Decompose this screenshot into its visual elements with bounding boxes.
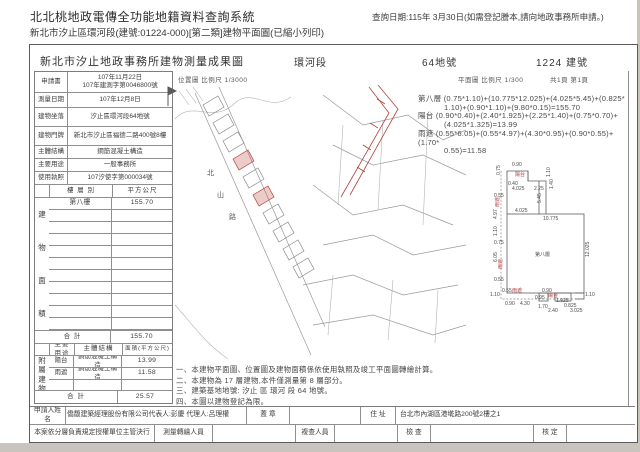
document-page: 北北桃地政電傳全功能地籍資料查詢系統 查詢日期:115年 3月30日(如需登記謄… (0, 0, 637, 443)
annex-total-area: 25.57 (117, 391, 172, 403)
row-label: 測量日期 (35, 93, 67, 107)
plan-dim-label: 2.40 (548, 308, 558, 314)
table-row: 測量日期 107年12月8日 (35, 92, 172, 107)
table-row: 主體結構 鋼筋混凝土構造 (35, 145, 172, 158)
annex-total-row: 合 計 25.57 (35, 390, 172, 403)
row-label: 申請書 (35, 72, 67, 92)
annex-use: 陽台 (49, 356, 73, 367)
query-date: 查詢日期:115年 3月30日(如需登記謄本,請向地政事務所申請。) (372, 11, 604, 23)
floor-name: 第八樓 (49, 198, 111, 209)
formula-label: 第八層 (418, 94, 441, 103)
row-value: 一般事務所 (67, 159, 172, 171)
surveyor-label: 測量轉繪人員 (155, 425, 213, 442)
seal-cell (290, 407, 361, 424)
annex-header-row: 主要用途 主體結構 面積(平方公尺) (35, 343, 172, 355)
annex-row: 雨遮 鋼筋混凝土構造 11.58 (49, 367, 172, 379)
formula-entry: 雨遮 (0.55*6.05)+(0.55*4.97)+(4.30*0.95)+(… (418, 130, 633, 156)
document-subtitle: 新北市汐止區環河段(建號:01224-000)[第二類]建物平面圖(已縮小列印) (30, 25, 324, 39)
row-value: 107年11月22日 107年建測字第0046800號 (67, 72, 172, 92)
annex-side-label: 附 屬 建 物 (35, 356, 49, 390)
row-label: 使用執照 (35, 172, 67, 184)
col-header-annex-area: 面積(平方公尺) (122, 344, 172, 355)
reviewer-label: 複查人員 (296, 425, 335, 442)
total-label: 合 計 (35, 331, 110, 343)
row-value: 鋼筋混凝土構造 (67, 146, 172, 158)
formula-entry: 第八層 (0.75*1.10)+(10.775*12.025)+(4.025*5… (418, 95, 633, 112)
check-cell (431, 425, 534, 442)
col-header-area: 平方公尺 (112, 185, 172, 197)
annex-use: 雨遮 (49, 368, 73, 379)
plan-dim-label: 4.025 (512, 186, 525, 192)
plan-dim-label: 雨遮 (512, 287, 522, 294)
floor-plan-svg: 0.900.75陽台0.401.104.0252.251.405.450.55雨… (479, 159, 639, 339)
applicant-row: 申請人姓名 僑馥建築經理股份有限公司代表人:彭慶 代理人:呂理權 蓋 章 住 址… (30, 407, 635, 425)
plan-dim-label: 12.025 (585, 241, 591, 257)
total-area: 155.70 (110, 331, 172, 343)
col-header-structure: 主體結構 (74, 344, 122, 355)
annex-row: 陽台 鋼筋混凝土構造 13.99 (49, 356, 172, 367)
plan-dim-label: 1.10 (585, 292, 595, 298)
col-header-use: 主要用途 (49, 344, 74, 355)
plan-dim-label: 雨遮 (494, 197, 501, 207)
note-line: 二、本建物為 17 層建物,本件僅測量第 8 層部分。 (176, 376, 438, 387)
approve-cell (567, 425, 635, 442)
form-title: 新北市汐止地政事務所建物測量成果圖 (40, 53, 244, 69)
floor-area: 155.70 (111, 198, 172, 209)
row-value: 新北市汐止區福德二路400號8樓 (67, 127, 172, 145)
system-title: 北北桃地政電傳全功能地籍資料查詢系統 (30, 8, 255, 25)
plan-dim-label: 1.10 (490, 292, 500, 298)
table-row: 主要用途 一般事務所 (35, 158, 172, 171)
address-label: 住 址 (361, 407, 396, 424)
row-value: 107汐使字第000034號 (67, 172, 172, 184)
surveyor-cell (213, 425, 296, 442)
formula-label: 陽台 (418, 111, 434, 120)
plan-dim-label: 0.90 (512, 162, 522, 168)
plan-dim-label: 1.10 (493, 226, 499, 236)
plan-dim-label: 0.55 (494, 277, 504, 283)
plan-dim-label: 陽台 (515, 171, 525, 178)
formula-entry: 陽台 (0.90*0.40)+(2.40*1.925)+(2.25*1.40)+… (418, 112, 633, 129)
road-label-char: 山 (217, 190, 224, 199)
floor-plan-scale: 平面圖 比例尺 1/300 (458, 74, 523, 84)
row-label: 建物坐落 (35, 108, 67, 126)
page-indicator: 共1頁 第1頁 (550, 74, 589, 84)
plan-dim-label: 1.10 (546, 167, 552, 177)
plan-dim-label: 1.70 (538, 304, 548, 310)
approve-label: 核 定 (534, 425, 567, 442)
row-value: 汐止區環河段64地號 (67, 108, 172, 126)
survey-form-frame: 新北市汐止地政事務所建物測量成果圖 環河段 64地號 1224 建號 位置圖 比… (29, 44, 638, 443)
col-header-floor: 樓 層 別 (49, 185, 112, 197)
area-side-label: 建 物 面 積 (35, 198, 49, 330)
area-row: 第八樓 155.70 (49, 198, 172, 209)
annex-structure: 鋼筋混凝土構造 (73, 368, 121, 379)
row-label: 主體結構 (35, 146, 67, 158)
location-map-scale: 位置圖 比例尺 1/3000 (178, 74, 248, 84)
reviewer-cell (335, 425, 398, 442)
table-row: 建物門牌 新北市汐止區福德二路400號8樓 (35, 126, 172, 145)
section-name: 環河段 (294, 54, 327, 69)
plan-dim-label: 雨遮 (497, 259, 504, 269)
seal-label: 蓋 章 (247, 407, 290, 424)
annex-total-label: 合 計 (35, 391, 117, 403)
plan-dim-label: 4.30 (520, 301, 530, 307)
applicant-label: 申請人姓名 (30, 407, 66, 424)
area-header-row: 樓 層 別 平方公尺 (35, 184, 172, 197)
plan-dim-label: 4.97 (493, 209, 499, 219)
row-label: 主要用途 (35, 159, 67, 171)
annex-area: 11.58 (121, 368, 172, 379)
area-body: 建 物 面 積 第八樓 155.70 (35, 197, 172, 330)
plan-dim-label: 0.95 (535, 295, 545, 301)
check-label: 檢 查 (398, 425, 431, 442)
row-label: 建物門牌 (35, 127, 67, 145)
apply-date: 107年11月22日 (98, 74, 142, 82)
plan-dim-label: 5.45 (537, 193, 543, 203)
table-row: 建物坐落 汐止區環河段64地號 (35, 107, 172, 126)
plan-dim-label: 3.025 (570, 308, 583, 314)
building-number: 1224 建號 (536, 54, 588, 69)
plan-dim-label: 4.025 (515, 208, 528, 214)
table-row: 申請書 107年11月22日 107年建測字第0046800號 (35, 72, 172, 92)
approval-row: 本案依分層負責規定授權單位主管決行 測量轉繪人員 複查人員 檢 查 核 定 (30, 425, 635, 442)
notes-block: 一、本建物平面圖、位置圖及建物面積係依使用執照及竣工平面圖轉繪計算。 二、本建物… (176, 365, 438, 408)
building-info-table: 申請書 107年11月22日 107年建測字第0046800號 測量日期 107… (34, 71, 173, 404)
signature-table: 申請人姓名 僑馥建築經理股份有限公司代表人:彭慶 代理人:呂理權 蓋 章 住 址… (30, 406, 635, 441)
area-formulas: 第八層 (0.75*1.10)+(10.775*12.025)+(4.025*5… (418, 95, 633, 156)
land-number: 64地號 (422, 54, 457, 69)
row-value: 107年12月8日 (67, 93, 172, 107)
delegation-note: 本案依分層負責規定授權單位主管決行 (30, 425, 155, 442)
plan-dim-label: 2.25 (534, 186, 544, 192)
note-line: 三、建築基地地號: 汐止 區 環河 段 64 地號。 (176, 386, 438, 397)
area-total-row: 合 計 155.70 (35, 330, 172, 343)
road-label-char: 路 (229, 212, 236, 221)
table-row: 使用執照 107汐使字第000034號 (35, 171, 172, 184)
road-label-char: 北 (207, 169, 214, 177)
plan-dim-label: 0.90 (505, 301, 515, 307)
address-value: 台北市內湖區港墘路200號2樓之1 (396, 407, 635, 424)
plan-dim-label: 0.75 (494, 240, 504, 246)
applicant-value: 僑馥建築經理股份有限公司代表人:彭慶 代理人:呂理權 (66, 407, 247, 424)
plan-dim-label: 10.775 (543, 216, 559, 222)
annex-structure: 鋼筋混凝土構造 (73, 356, 121, 367)
plan-dim-label: 第八層 (535, 251, 550, 258)
plan-dim-label: 0.55 (502, 288, 512, 294)
annex-body: 附 屬 建 物 陽台 鋼筋混凝土構造 13.99 雨遮 鋼筋混凝土構造 11.5… (35, 355, 172, 390)
annex-area: 13.99 (121, 356, 172, 367)
note-line: 一、本建物平面圖、位置圖及建物面積係依使用執照及竣工平面圖轉繪計算。 (176, 365, 438, 376)
plan-dim-label: 0.75 (496, 165, 502, 175)
plan-dim-label: 1.40 (549, 179, 555, 189)
apply-number: 107年建測字第0046800號 (82, 82, 157, 90)
formula-label: 雨遮 (418, 129, 434, 138)
